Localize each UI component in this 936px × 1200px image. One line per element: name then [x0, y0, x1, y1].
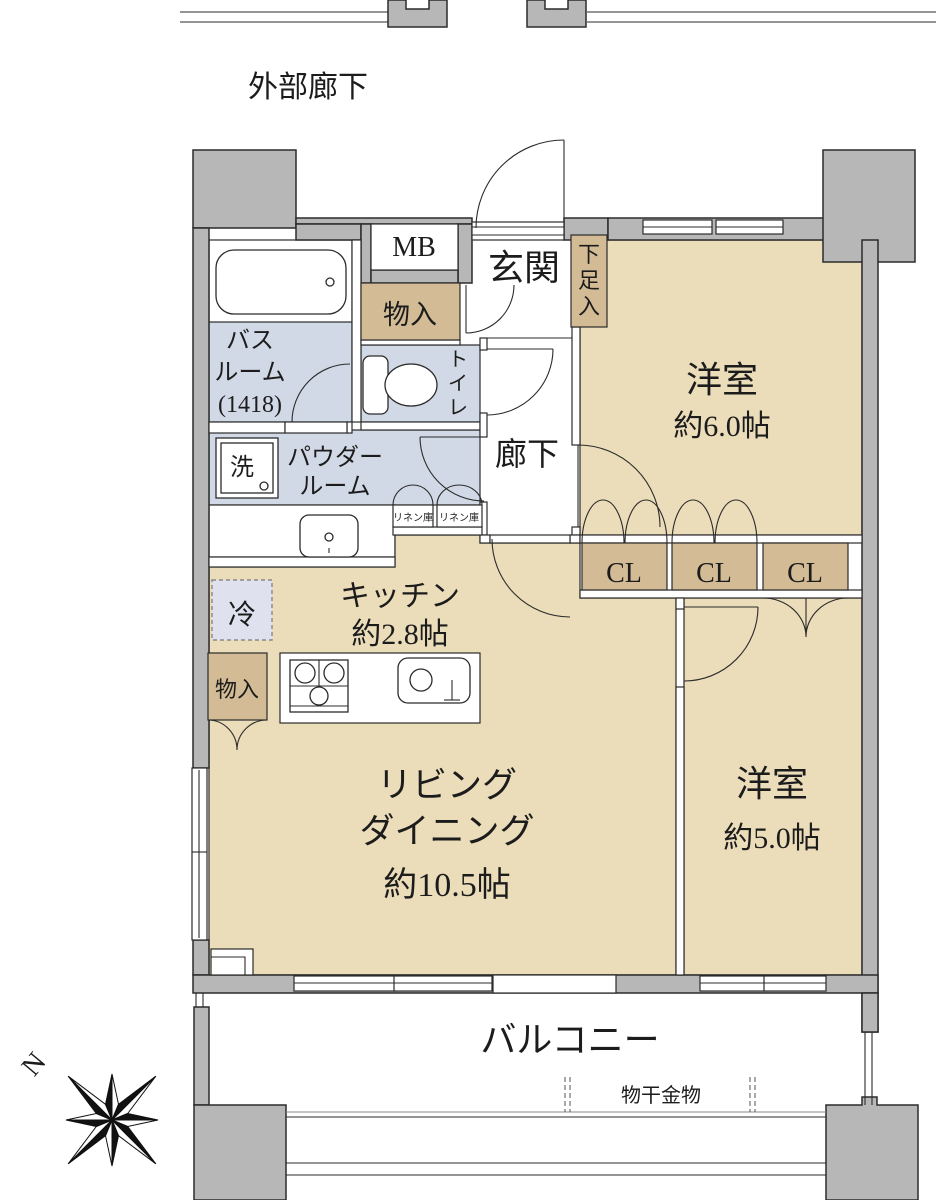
hallway-label: 廊下 — [495, 436, 559, 472]
kitchen-size: 約2.8帖 — [351, 618, 449, 651]
room-floors — [209, 240, 862, 975]
bath-door-threshold — [285, 422, 347, 433]
balcony-opening — [493, 975, 616, 993]
wall-left-lower — [193, 940, 209, 975]
bath-label-3: (1418) — [218, 392, 282, 418]
pillar-bottom-left — [194, 1105, 286, 1200]
corridor-pillar-right — [527, 0, 586, 27]
floor-plan-svg: N 外部廊下 MB 玄関 下足入 物入 バス ルーム (1418) トイレ 廊下… — [0, 0, 936, 1200]
compass-north-label: N — [16, 1047, 53, 1082]
pillar-top-left — [193, 150, 296, 228]
closet3-label: CL — [787, 558, 823, 589]
bedroom2-size: 約5.0帖 — [723, 822, 821, 855]
toilet-bowl — [385, 364, 437, 406]
toilet-tank — [363, 356, 388, 414]
exterior-corridor-label: 外部廊下 — [248, 71, 368, 104]
floor-plan: N 外部廊下 MB 玄関 下足入 物入 バス ルーム (1418) トイレ 廊下… — [0, 0, 936, 1200]
closet2-label: CL — [696, 558, 732, 589]
kitchen-sink — [398, 658, 470, 703]
hallway-living-threshold — [490, 535, 570, 543]
bathtub-drain — [326, 278, 334, 286]
kitchen-label: キッチン — [340, 580, 460, 613]
bath-label-2: ルーム — [214, 360, 285, 386]
living-corner-box — [211, 949, 253, 975]
linen-label-2: リネン庫 — [439, 511, 479, 524]
entrance-label: 玄関 — [488, 248, 560, 288]
bath-label-1: バス — [226, 328, 274, 354]
compass-rose-icon: N — [16, 1047, 158, 1166]
living-label-2: ダイニング — [359, 812, 534, 851]
bedroom1-size: 約6.0帖 — [673, 410, 771, 443]
storage-top-label: 物入 — [383, 300, 437, 330]
entrance-threshold — [472, 222, 564, 240]
laundry-hardware-label: 物干金物 — [621, 1084, 701, 1107]
entrance-door-arc — [476, 140, 564, 228]
balcony-label: バルコニー — [480, 1020, 659, 1060]
living-size: 約10.5帖 — [383, 866, 511, 904]
pillar-bottom-right — [826, 1097, 918, 1200]
bedroom2-label: 洋室 — [736, 764, 808, 804]
powder-label-2: ルーム — [299, 474, 370, 500]
closet1-label: CL — [606, 558, 642, 589]
exterior-corridor-railing — [180, 0, 936, 27]
wash-label: 洗 — [230, 454, 254, 481]
corridor-pillar-left — [388, 0, 447, 27]
washer-drain — [260, 482, 268, 490]
living-label-1: リビング — [377, 766, 517, 805]
meter-box-label: MB — [392, 232, 436, 263]
toilet-label: トイレ — [448, 349, 468, 419]
linen-label-1: リネン庫 — [393, 511, 433, 524]
wall-left-upper — [193, 228, 209, 768]
balcony-side-wall — [194, 1007, 209, 1105]
fridge-label: 冷 — [228, 599, 256, 631]
shoe-box-label: 下足入 — [578, 242, 600, 319]
wall-right — [862, 240, 878, 1032]
storage-kitchen-label: 物入 — [215, 677, 259, 702]
storage-top-door-arc — [466, 285, 514, 333]
powder-label-1: パウダー — [287, 444, 383, 471]
bedroom1-label: 洋室 — [686, 360, 758, 400]
toilet-door-arc — [487, 349, 553, 415]
